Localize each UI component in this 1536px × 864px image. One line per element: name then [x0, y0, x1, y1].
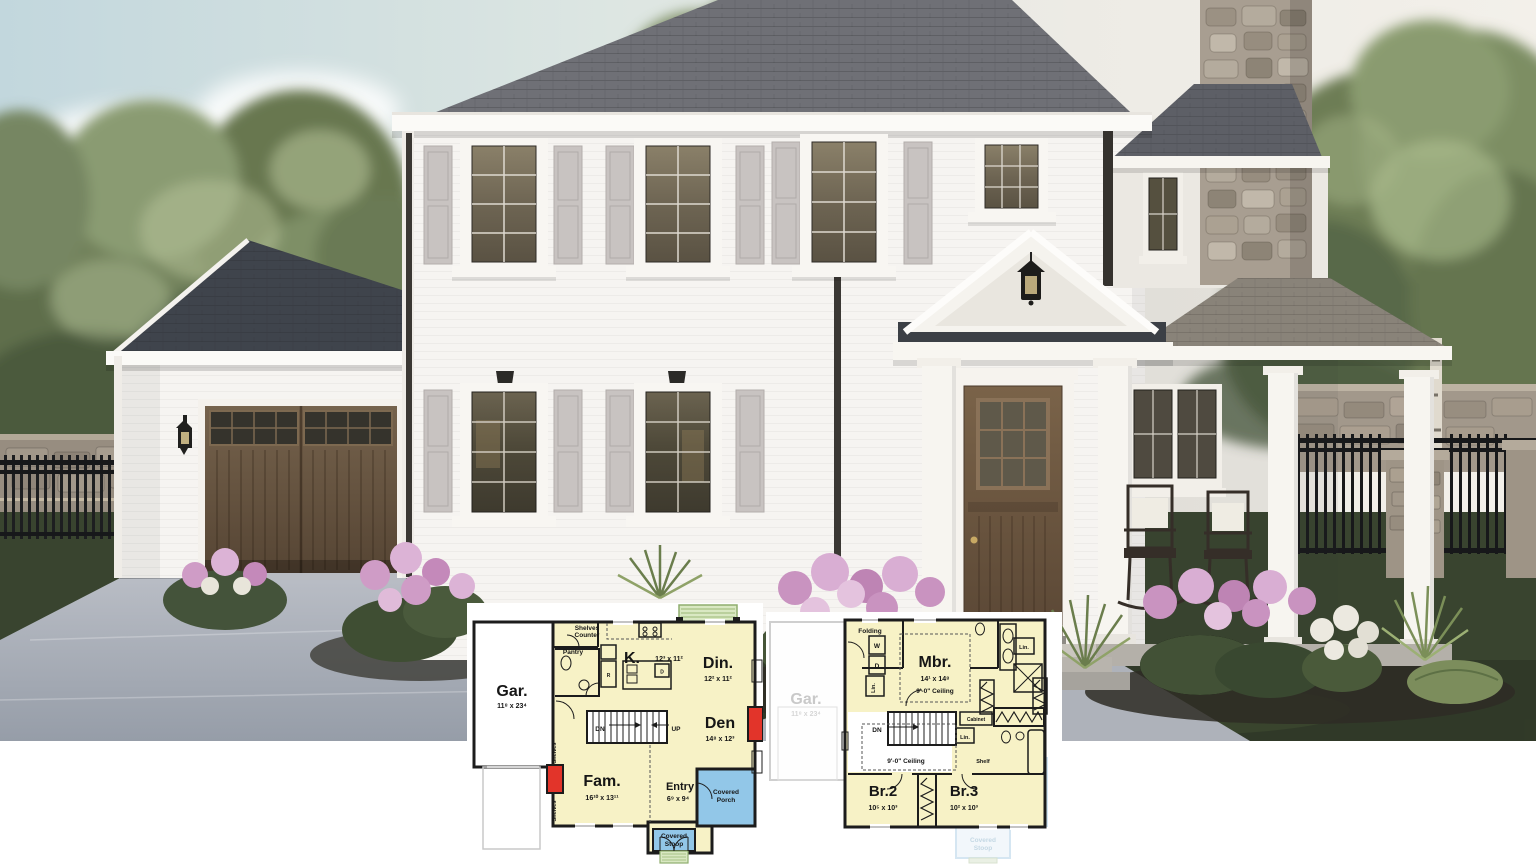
lower-window: [606, 383, 764, 527]
family-fireplace: [547, 765, 563, 793]
label-dn: DN: [872, 727, 882, 734]
upper-window: [606, 138, 764, 281]
label-dryer: D: [875, 663, 880, 670]
room-label-dining: Din.: [703, 655, 733, 672]
label-hall-ceiling: 9'-0" Ceiling: [887, 758, 925, 765]
label-shelves: Shelves: [575, 625, 600, 632]
room-label-kitchen: K.: [624, 650, 640, 667]
room-dims-den: 14⁸ x 12³: [706, 736, 736, 743]
column: [917, 358, 961, 650]
front-door: [948, 368, 1078, 648]
label-lin-2: Lin.: [1019, 645, 1029, 651]
upper-window: [772, 134, 932, 281]
label-lin-1: Lin.: [871, 683, 877, 693]
label-lin-3: Lin.: [960, 735, 970, 741]
label-counter: Counter: [575, 632, 600, 639]
den-fireplace: [748, 707, 763, 741]
room-dims-br2: 10⁵ x 10³: [869, 805, 899, 812]
label-folding: Folding: [858, 628, 881, 635]
room-label-master: Mbr.: [919, 654, 952, 671]
downspout: [1103, 131, 1113, 286]
room-dims-entry: 6⁹ x 9⁴: [667, 796, 690, 803]
column: [1399, 370, 1439, 654]
front-steps: [660, 851, 688, 863]
porch-window-pair: [1124, 384, 1226, 497]
bay-upper-window: [968, 138, 1056, 226]
room-label-br2: Br.2: [869, 783, 897, 800]
label-covered-porch-1: Covered: [713, 789, 739, 796]
label-cabinet: Cabinet: [967, 717, 986, 723]
first-floor-plan: Gar. 11⁸ x 23⁴ Shelves Counter Pantry K.…: [467, 603, 763, 864]
fence-stone-pillar: [1502, 440, 1536, 578]
label-fridge: R: [607, 673, 611, 679]
label-pantry: Pantry: [563, 649, 584, 656]
label-master-ceiling: 9'-0" Ceiling: [916, 688, 954, 695]
label-covered-stoop-1: Covered: [661, 833, 687, 840]
label-washer: W: [874, 643, 881, 650]
room-dims-master: 14¹ x 14⁸: [921, 676, 950, 683]
room-label-family: Fam.: [583, 773, 620, 790]
upper-window: [424, 138, 582, 281]
label-covered-stoop-2: Stoop: [665, 841, 683, 848]
label-shelf: Shelf: [976, 759, 990, 765]
lower-window: [424, 383, 582, 527]
ghost-label-stoop-2: Stoop: [974, 845, 992, 852]
second-floor-plan: Gar. 11⁸ x 23⁴ Covered Porch Covered Sto…: [766, 612, 1062, 864]
label-dishwasher: D: [660, 670, 664, 676]
ghost-label-garage: Gar.: [790, 691, 821, 708]
room-label-garage: Gar.: [496, 683, 527, 700]
house-plan-advertisement: Gar. 11⁸ x 23⁴ Shelves Counter Pantry K.…: [0, 0, 1536, 864]
room-label-entry: Entry: [666, 781, 695, 793]
door-knob: [971, 537, 978, 544]
downspout: [406, 133, 412, 577]
room-label-den: Den: [705, 715, 735, 732]
room-dims-br3: 10² x 10³: [950, 805, 979, 812]
label-up: UP: [671, 726, 681, 733]
label-covered-porch-2: Porch: [717, 797, 735, 804]
room-dims-kitchen: 12³ x 11²: [655, 656, 683, 663]
room-dims-family: 16¹⁰ x 13¹¹: [585, 794, 619, 802]
room-dims-garage: 11⁸ x 23⁴: [497, 703, 527, 710]
room-dims-dining: 12² x 11²: [704, 676, 732, 683]
ghost-label-stoop-1: Covered: [970, 837, 996, 844]
room-label-br3: Br.3: [950, 783, 978, 800]
label-dn: DN: [595, 726, 605, 733]
label-shelves-left-b: Shelves: [552, 801, 558, 822]
ghost-dims-garage: 11⁸ x 23⁴: [791, 711, 821, 718]
label-shelves-left-a: Shelves: [552, 743, 558, 764]
right-wing-window: [1139, 172, 1187, 264]
